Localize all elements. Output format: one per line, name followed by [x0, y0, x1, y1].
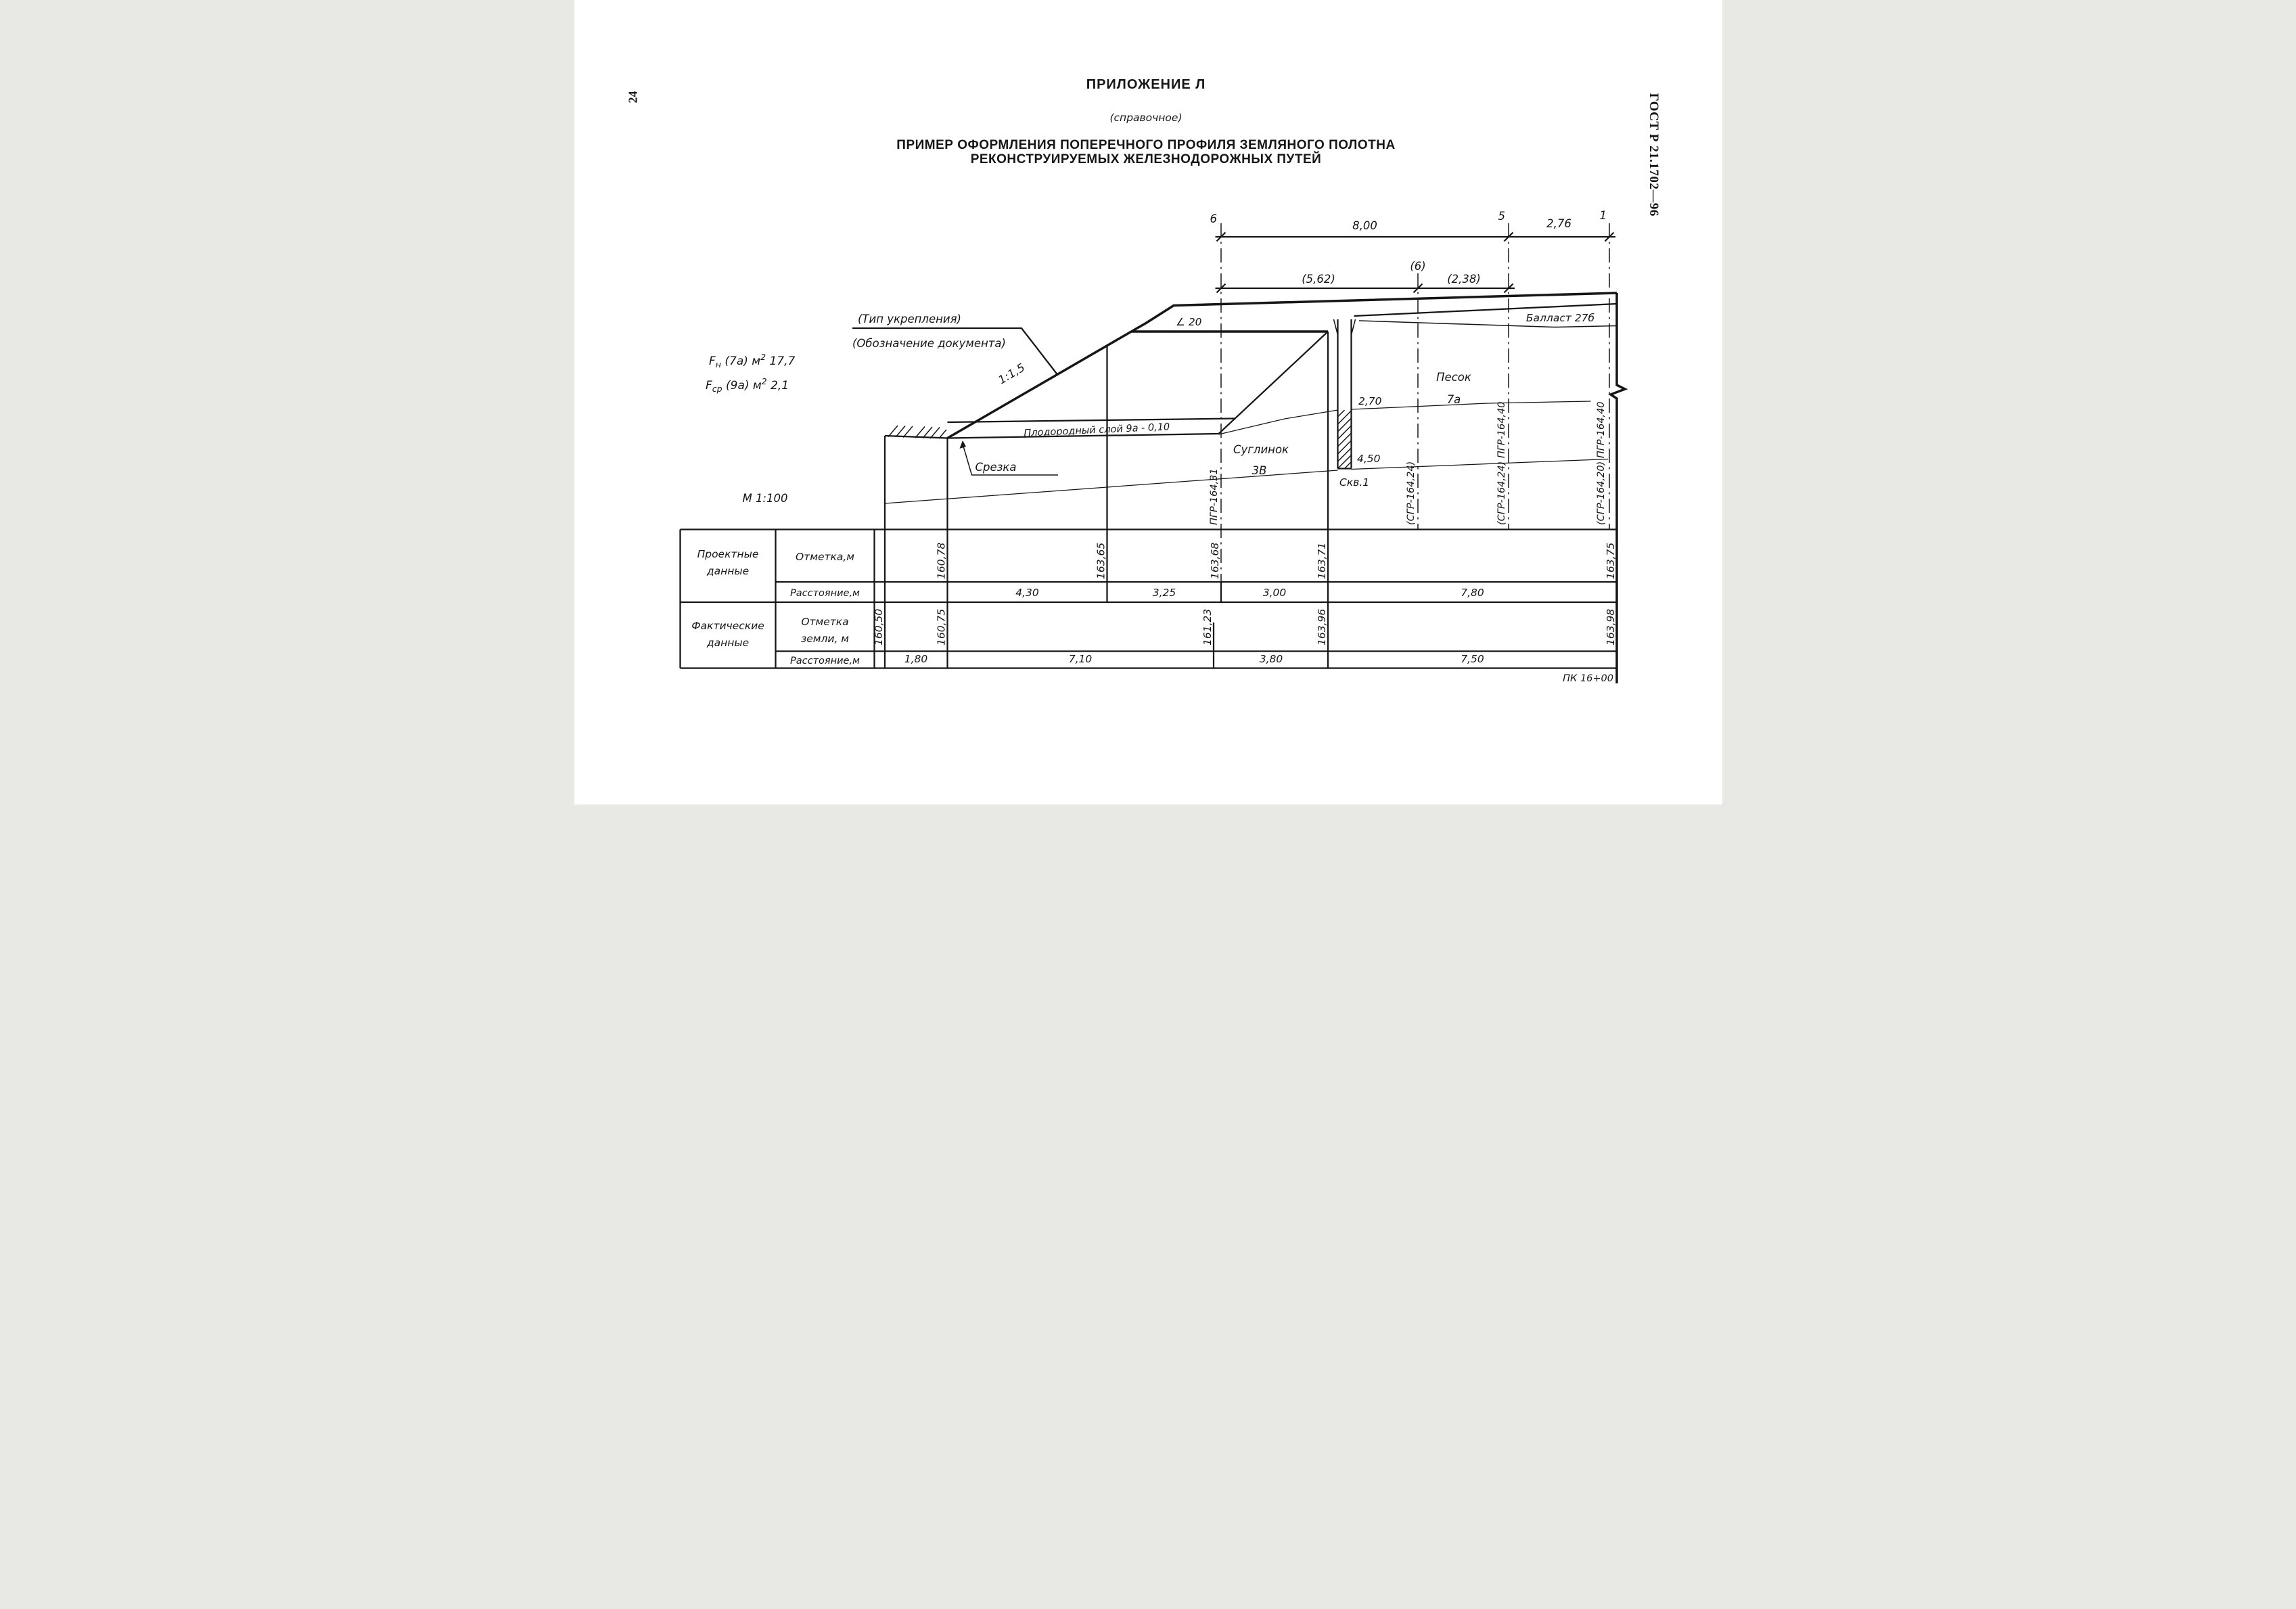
axis-point-5-label: 5 — [1498, 210, 1505, 223]
scale-label: М 1:100 — [742, 492, 787, 505]
dimension-lines: 6 5 1 8,00 2,76 (6) (5,62) (2,38) — [1210, 209, 1615, 293]
topsoil-band-top — [947, 419, 1235, 423]
fact-distance-value: 7,10 — [1068, 653, 1092, 665]
axis-point-1-label: 1 — [1599, 209, 1607, 222]
axis-design-track-label: ПГР-164,31 — [1209, 468, 1220, 525]
standard-reference: ГОСТ Р 21.1702—96 — [1647, 93, 1661, 217]
design-slope-and-subgrade — [947, 293, 1617, 438]
data-table: Проектные данные Отметка,м Расстояние,м … — [680, 530, 1617, 668]
cut-leader-arrow — [959, 440, 966, 449]
grade-20-label: ∠ 20 — [1176, 316, 1202, 328]
borehole-hatch — [1337, 410, 1351, 469]
axis-6-paren-label: (6) — [1410, 260, 1425, 273]
project-elevation-value: 160,78 — [935, 543, 947, 579]
f2-mid: (9а) м — [722, 379, 761, 392]
project-elevations: 160,78 163,65 163,68 163,71 163,75 — [935, 543, 1617, 579]
dim-2-38: (2,38) — [1447, 273, 1481, 286]
loam-index-label: 3В — [1252, 464, 1266, 477]
drawing-annotations: (Тип укрепления) (Обозначение документа)… — [706, 312, 1613, 684]
cross-section-drawing: 24 ГОСТ Р 21.1702—96 ПРИЛОЖЕНИЕ Л (справ… — [574, 0, 1722, 805]
document-page: 24 ГОСТ Р 21.1702—96 ПРИЛОЖЕНИЕ Л (справ… — [574, 0, 1722, 805]
borehole-depth-lower: 4,50 — [1357, 453, 1381, 465]
page-number: 24 — [626, 91, 639, 104]
project-distance-value: 7,80 — [1461, 587, 1484, 599]
fact-elevation-value: 163,96 — [1316, 609, 1328, 645]
f1: F — [709, 355, 716, 368]
row-mark-label: Отметка,м — [796, 551, 854, 563]
note-leader-line — [852, 328, 1057, 375]
table-grid — [680, 530, 1617, 668]
area-embankment-label: Fн (7а) м2 17,7 — [709, 352, 796, 369]
project-distance-value: 3,00 — [1262, 587, 1286, 599]
dim-5-62: (5,62) — [1302, 273, 1335, 286]
picket-label: ПК 16+00 — [1563, 673, 1613, 684]
f2-val: 2,1 — [766, 379, 788, 392]
row-dist-label: Расстояние,м — [790, 588, 860, 599]
fact-distance-value: 7,50 — [1461, 653, 1484, 665]
borehole-depth-upper: 2,70 — [1358, 395, 1382, 407]
sand-name-label: Песок — [1436, 371, 1471, 384]
cut-label: Срезка — [975, 461, 1016, 474]
project-distance-value: 3,25 — [1152, 587, 1176, 599]
group-project-line1: Проектные — [697, 548, 758, 560]
group-fact-line2: данные — [706, 637, 748, 649]
soil-boundary-loam-top — [1218, 401, 1590, 434]
fact-elevation-value: 161,23 — [1201, 609, 1214, 645]
fact-elevations: 160,50 160,75 161,23 163,96 163,98 — [873, 609, 1617, 645]
f1-sub: н — [715, 359, 720, 369]
fact-distance-value: 1,80 — [904, 653, 927, 665]
appendix-title: ПРИЛОЖЕНИЕ Л — [1086, 77, 1206, 92]
f2-exp: 2 — [761, 376, 766, 386]
area-cut-label: Fср (9а) м2 2,1 — [706, 376, 789, 394]
sand-index-label: 7а — [1446, 393, 1461, 406]
fact-elevation-value: 160,50 — [873, 609, 885, 645]
fact-distance-value: 3,80 — [1259, 653, 1283, 665]
drawing-title-line2: РЕКОНСТРУИРУЕМЫХ ЖЕЛЕЗНОДОРОЖНЫХ ПУТЕЙ — [970, 152, 1321, 166]
fact-distances: 1,80 7,10 3,80 7,50 — [904, 653, 1484, 665]
axis-point-6-label: 6 — [1210, 212, 1217, 225]
group-project-line2: данные — [706, 565, 748, 577]
track-axes: ПГР-164,31 (СГР-164,24) (СГР-164,24) ПГР… — [1209, 223, 1609, 582]
existing-embankment-slope — [1218, 332, 1328, 434]
group-fact-line1: Фактические — [691, 620, 764, 632]
dim-2-76: 2,76 — [1546, 217, 1571, 230]
slope-ratio-label: 1:1,5 — [996, 361, 1027, 386]
row-mark-ground-line2: земли, м — [801, 633, 849, 645]
f2-sub: ср — [712, 384, 722, 394]
f1-mid: (7а) м — [720, 355, 760, 368]
axis-track-6-label: (СГР-164,24) — [1406, 461, 1417, 525]
appendix-note: (справочное) — [1109, 112, 1182, 124]
row-dist2-label: Расстояние,м — [790, 656, 860, 666]
f2: F — [706, 379, 712, 392]
page-header: 24 ГОСТ Р 21.1702—96 ПРИЛОЖЕНИЕ Л (справ… — [626, 77, 1661, 217]
borehole-tube — [1337, 319, 1351, 469]
f1-val: 17,7 — [766, 355, 795, 368]
project-elevation-value: 163,68 — [1209, 543, 1221, 579]
project-distances: 4,30 3,25 3,00 7,80 — [1015, 587, 1484, 599]
fact-elevation-value: 160,75 — [935, 609, 947, 645]
borehole-funnel — [1333, 319, 1355, 335]
fact-elevation-value: 163,98 — [1605, 609, 1617, 645]
project-distance-value: 4,30 — [1015, 587, 1039, 599]
drawing-title-line1: ПРИМЕР ОФОРМЛЕНИЯ ПОПЕРЕЧНОГО ПРОФИЛЯ ЗЕ… — [896, 138, 1395, 152]
row-mark-ground-line1: Отметка — [801, 616, 848, 628]
loam-name-label: Суглинок — [1233, 443, 1288, 456]
dim-8-00: 8,00 — [1352, 219, 1377, 232]
project-elevation-value: 163,65 — [1095, 543, 1107, 579]
f1-exp: 2 — [760, 352, 766, 362]
reinforcement-type-note: (Тип укрепления) — [858, 313, 961, 325]
borehole-name: Скв.1 — [1339, 476, 1369, 489]
document-designation-note: (Обозначение документа) — [852, 337, 1006, 350]
ballast-label: Балласт 27б — [1525, 312, 1594, 324]
axis-track-1-label: (СГР-164,20) ПГР-164,40 — [1596, 401, 1607, 525]
project-elevation-value: 163,71 — [1316, 543, 1328, 579]
profile-geometry — [885, 293, 1625, 683]
project-elevation-value: 163,75 — [1605, 543, 1617, 579]
borehole: 2,70 4,50 Скв.1 — [1333, 319, 1381, 489]
